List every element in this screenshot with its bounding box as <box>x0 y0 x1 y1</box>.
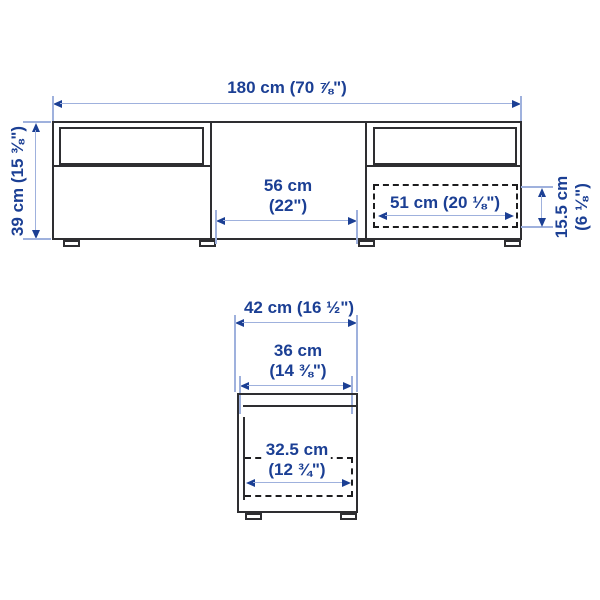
arrow-shaft <box>385 215 507 217</box>
bench-divider-right <box>365 123 367 238</box>
side-top-panel-line <box>243 405 357 407</box>
bench-foot <box>504 240 521 247</box>
side-drawer-depth-label: 32.5 cm (12 ¾") <box>263 440 331 480</box>
furniture-dimension-diagram: 180 cm (70 ⅞") 39 cm (15 ⅜") 56 cm (22")… <box>0 0 600 600</box>
top-depth-cm: 36 cm <box>269 341 326 361</box>
front-overall-height-label: 39 cm (15 ⅜") <box>8 126 28 236</box>
drawer-height-cm: 15.5 cm <box>552 176 572 238</box>
drawer-height-arrow <box>537 188 546 227</box>
bench-right-open-shelf <box>373 127 517 165</box>
arrow-shaft <box>60 103 514 105</box>
side-top-depth-label: 36 cm (14 ⅜") <box>269 341 326 381</box>
drawer-depth-in: (12 ¾") <box>263 460 331 480</box>
arrow-shaft <box>247 385 345 387</box>
front-overall-width-arrow <box>53 99 521 108</box>
side-overall-depth-arrow <box>235 318 357 327</box>
extension-line <box>215 210 217 244</box>
drawer-width-arrow <box>378 211 514 220</box>
extension-line <box>356 210 358 244</box>
side-foot <box>245 513 262 520</box>
extension-line <box>234 315 236 392</box>
middle-width-in: (22") <box>264 196 312 216</box>
side-overall-depth-label: 42 cm (16 ½") <box>244 298 354 318</box>
bench-left-open-shelf <box>59 127 204 165</box>
extension-line <box>520 96 522 121</box>
drawer-width-label: 51 cm (20 ⅛") <box>390 193 500 213</box>
drawer-height-in: (6 ⅛") <box>572 176 592 238</box>
bench-foot <box>199 240 216 247</box>
middle-width-cm: 56 cm <box>264 176 312 196</box>
side-drawer-depth-arrow <box>246 478 351 487</box>
front-overall-width-label: 180 cm (70 ⅞") <box>227 78 347 98</box>
arrow-shaft <box>223 220 350 222</box>
extension-line <box>23 121 51 123</box>
bench-foot <box>63 240 80 247</box>
arrow-shaft <box>35 130 37 232</box>
extension-line <box>356 315 358 392</box>
front-overall-height-arrow <box>31 123 40 239</box>
front-middle-width-arrow <box>216 216 357 225</box>
extension-line <box>23 238 51 240</box>
extension-line <box>52 96 54 121</box>
bench-foot <box>358 240 375 247</box>
drawer-height-label: 15.5 cm (6 ⅛") <box>552 176 592 238</box>
side-top-depth-arrow <box>240 381 352 390</box>
drawer-depth-cm: 32.5 cm <box>263 440 331 460</box>
front-middle-width-label: 56 cm (22") <box>264 176 312 216</box>
bench-right-shelf-line <box>365 165 522 167</box>
arrow-shaft <box>242 322 350 324</box>
bench-divider-left <box>210 123 212 238</box>
arrow-shaft <box>253 482 344 484</box>
arrow-shaft <box>541 195 543 220</box>
top-depth-in: (14 ⅜") <box>269 361 326 381</box>
bench-left-shelf-line <box>52 165 212 167</box>
side-foot <box>340 513 357 520</box>
